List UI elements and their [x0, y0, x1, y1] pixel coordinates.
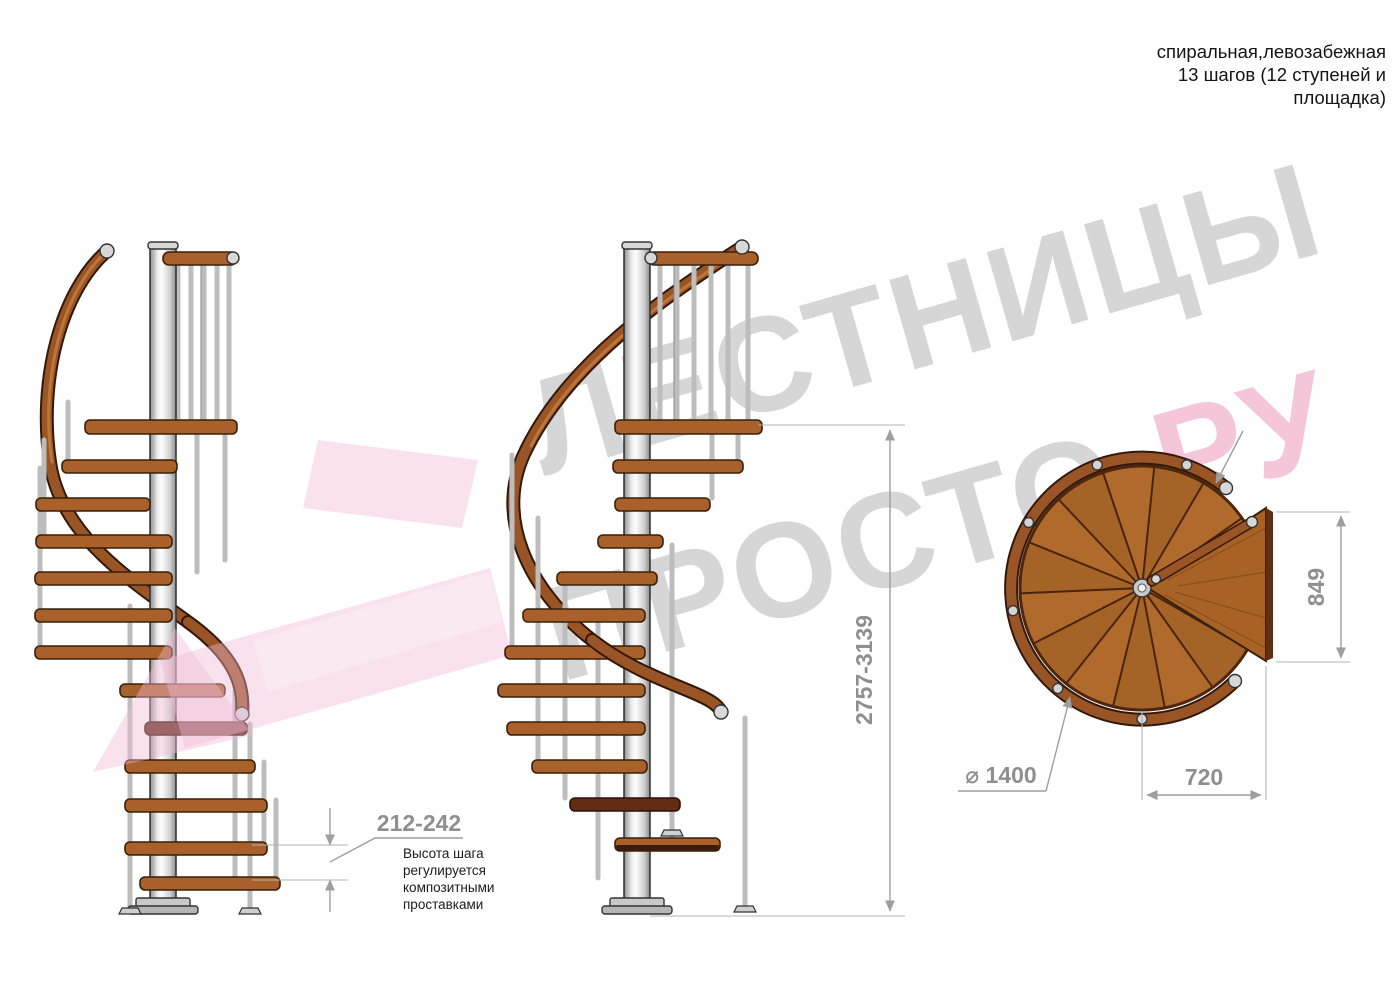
dim-landing-width-value: 720	[1185, 764, 1223, 790]
step	[36, 535, 172, 548]
step	[570, 798, 680, 811]
plan-landing-edge	[1266, 508, 1273, 661]
handrail-top-cap	[735, 240, 749, 254]
landing-step	[615, 420, 762, 434]
handrail-bottom-cap	[714, 705, 728, 719]
step	[35, 572, 172, 585]
step	[35, 609, 172, 622]
title-line: площадка)	[1293, 87, 1386, 108]
step	[613, 460, 743, 473]
technical-drawing-page: ЛЕСТНИЦЫ ПРОСТО.РУ	[0, 0, 1400, 1000]
step	[35, 646, 172, 659]
dim-total-height-value: 2757-3139	[851, 615, 877, 725]
step	[523, 609, 645, 622]
note-line: Высота шага	[403, 846, 484, 861]
step	[125, 842, 267, 855]
step	[532, 760, 647, 773]
step	[140, 877, 280, 890]
dim-diameter-value: ⌀ 1400	[965, 762, 1036, 788]
step	[507, 722, 645, 735]
step	[125, 799, 267, 812]
handrail-top-cap	[100, 244, 114, 258]
pole-base-flange	[602, 906, 672, 914]
step	[615, 498, 710, 511]
dim-landing-side-value: 849	[1303, 568, 1329, 606]
landing-guard-rail	[163, 252, 237, 265]
note-line: регулируется	[403, 863, 486, 878]
dim-landing-side: 849	[1276, 512, 1350, 662]
title-line: 13 шагов (12 ступеней и	[1178, 64, 1386, 85]
step	[62, 460, 177, 473]
step	[125, 760, 255, 773]
step	[557, 572, 657, 585]
dim-step-height-note: Высота шага регулируется композитными пр…	[403, 846, 494, 912]
note-line: композитными	[403, 880, 494, 895]
step	[598, 535, 663, 548]
spiral-staircase-drawing: ЛЕСТНИЦЫ ПРОСТО.РУ	[0, 0, 1400, 1000]
side-view-left	[35, 242, 280, 914]
step	[36, 498, 150, 511]
dim-step-height: 212-242 Высота шага регулируется компози…	[252, 808, 494, 912]
title-block: спиральная,левозабежная 13 шагов (12 сту…	[1157, 41, 1386, 108]
dim-step-height-value: 212-242	[377, 810, 461, 836]
landing-step	[85, 420, 237, 434]
note-line: проставками	[403, 897, 483, 912]
step-front-edge	[615, 845, 720, 851]
title-line: спиральная,левозабежная	[1157, 41, 1386, 62]
step	[498, 684, 645, 697]
